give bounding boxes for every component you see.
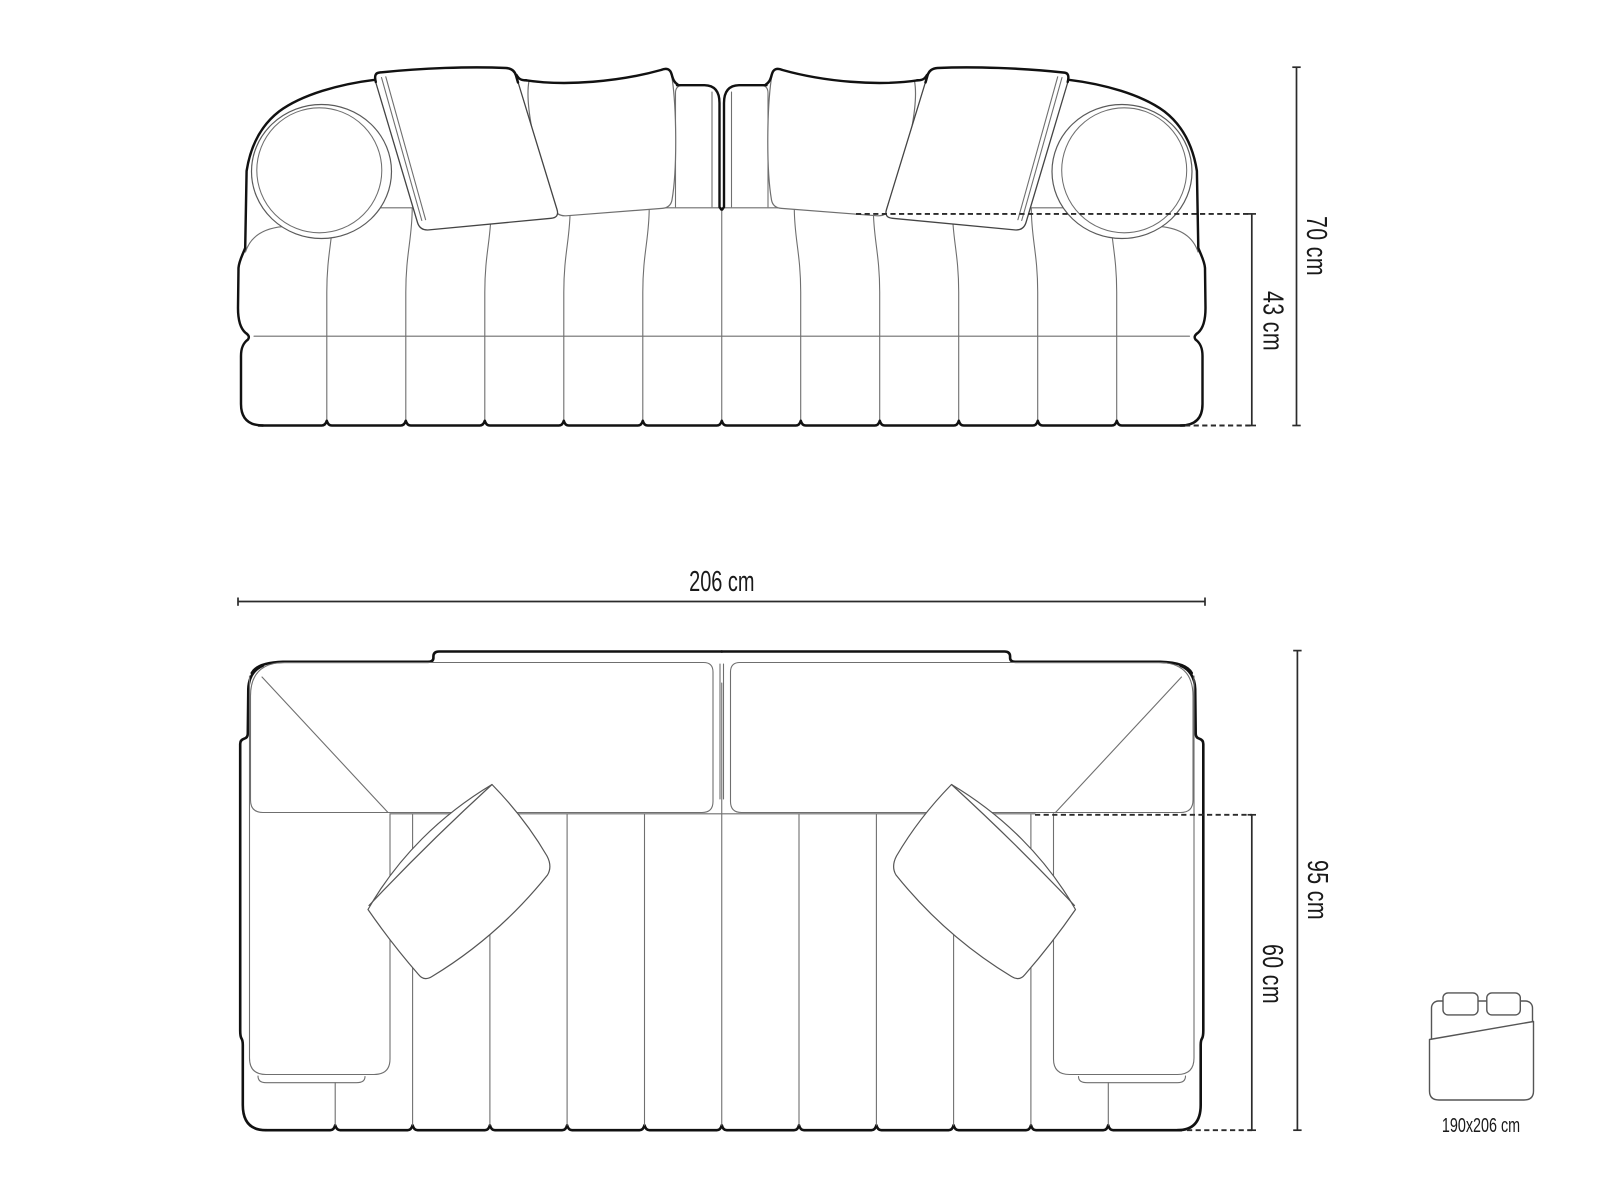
svg-text:206 cm: 206 cm (689, 566, 754, 597)
svg-text:95 cm: 95 cm (1301, 860, 1333, 920)
svg-text:43 cm: 43 cm (1257, 291, 1289, 351)
svg-text:70 cm: 70 cm (1300, 216, 1332, 276)
svg-text:190x206 cm: 190x206 cm (1442, 1113, 1520, 1136)
svg-text:60 cm: 60 cm (1256, 944, 1288, 1004)
